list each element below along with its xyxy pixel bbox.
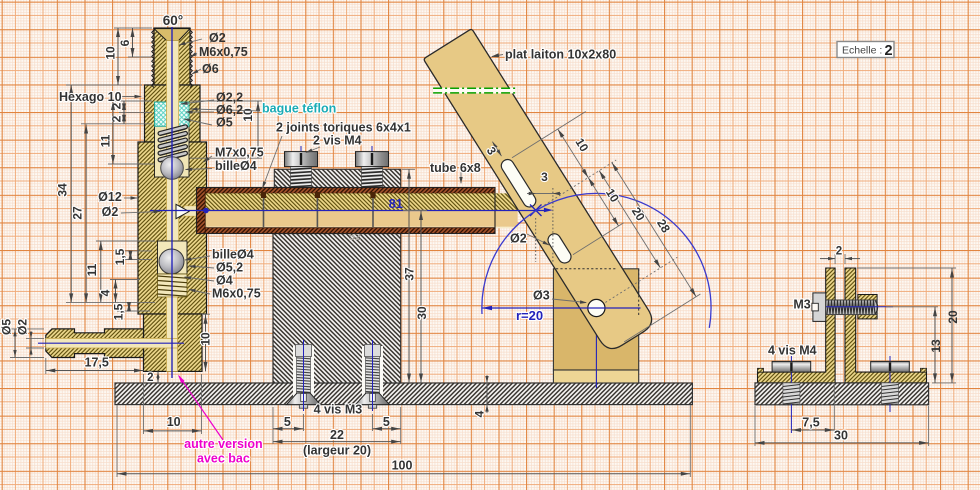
svg-text:10: 10	[104, 46, 118, 60]
svg-text:4: 4	[99, 289, 113, 296]
svg-text:Ø2: Ø2	[102, 205, 119, 219]
svg-text:11: 11	[99, 134, 113, 147]
svg-text:4: 4	[473, 410, 487, 417]
svg-text:Ø12: Ø12	[98, 190, 122, 204]
svg-text:Ø4: Ø4	[216, 274, 233, 288]
svg-text:7,5: 7,5	[802, 416, 819, 430]
svg-text:M6x0,75: M6x0,75	[199, 45, 248, 59]
svg-text:22: 22	[330, 428, 344, 442]
svg-text:2: 2	[110, 115, 124, 122]
svg-text:M3: M3	[793, 298, 810, 312]
svg-text:4 vis M3: 4 vis M3	[314, 403, 363, 417]
svg-text:30: 30	[834, 429, 848, 443]
svg-text:billeØ4: billeØ4	[215, 159, 257, 173]
svg-text:billeØ4: billeØ4	[212, 248, 254, 262]
svg-text:Ø2: Ø2	[510, 232, 527, 246]
svg-text:3: 3	[541, 170, 548, 184]
svg-text:2: 2	[884, 43, 892, 59]
svg-text:M6x0,75: M6x0,75	[212, 287, 261, 301]
svg-text:Ø5,2: Ø5,2	[216, 261, 243, 275]
svg-text:27: 27	[71, 206, 85, 220]
svg-text:(largeur 20): (largeur 20)	[303, 444, 371, 458]
svg-text:37: 37	[403, 267, 417, 281]
svg-text:Ø2: Ø2	[209, 31, 226, 45]
svg-text:Ø5: Ø5	[216, 116, 233, 130]
svg-text:Ø3: Ø3	[533, 289, 550, 303]
svg-text:5: 5	[284, 415, 291, 429]
svg-text:10: 10	[199, 332, 213, 346]
svg-text:2: 2	[147, 372, 153, 384]
svg-text:60°: 60°	[163, 13, 183, 28]
svg-text:2 joints toriques 6x4x1: 2 joints toriques 6x4x1	[276, 121, 411, 135]
svg-text:10: 10	[167, 415, 181, 429]
svg-text:1,5: 1,5	[112, 303, 126, 320]
svg-text:Ø6: Ø6	[202, 62, 219, 76]
svg-text:M7x0,75: M7x0,75	[215, 146, 264, 160]
svg-text:Echelle :: Echelle :	[842, 45, 882, 57]
svg-text:r=20: r=20	[516, 308, 543, 323]
svg-text:100: 100	[392, 459, 413, 473]
svg-text:Hexago 10: Hexago 10	[59, 90, 122, 104]
svg-text:17,5: 17,5	[85, 356, 109, 370]
svg-text:30: 30	[415, 306, 429, 320]
svg-text:plat laiton 10x2x80: plat laiton 10x2x80	[505, 48, 616, 62]
svg-text:81: 81	[389, 196, 403, 211]
svg-text:5: 5	[383, 415, 390, 429]
svg-text:1,5: 1,5	[113, 248, 127, 265]
svg-text:autre version: autre version	[184, 437, 263, 451]
svg-text:34: 34	[56, 183, 70, 197]
svg-text:6: 6	[118, 39, 132, 46]
svg-text:tube 6x8: tube 6x8	[430, 161, 481, 175]
svg-text:13: 13	[929, 339, 943, 353]
svg-text:2 vis M4: 2 vis M4	[313, 134, 362, 148]
svg-text:avec bac: avec bac	[197, 452, 250, 466]
svg-text:bague téflon: bague téflon	[262, 102, 336, 116]
svg-text:20: 20	[946, 310, 960, 324]
svg-text:4 vis M4: 4 vis M4	[768, 344, 817, 358]
svg-text:11: 11	[85, 263, 99, 276]
svg-text:2: 2	[836, 246, 842, 258]
svg-text:Ø5: Ø5	[0, 319, 14, 335]
svg-text:Ø2: Ø2	[16, 319, 30, 335]
